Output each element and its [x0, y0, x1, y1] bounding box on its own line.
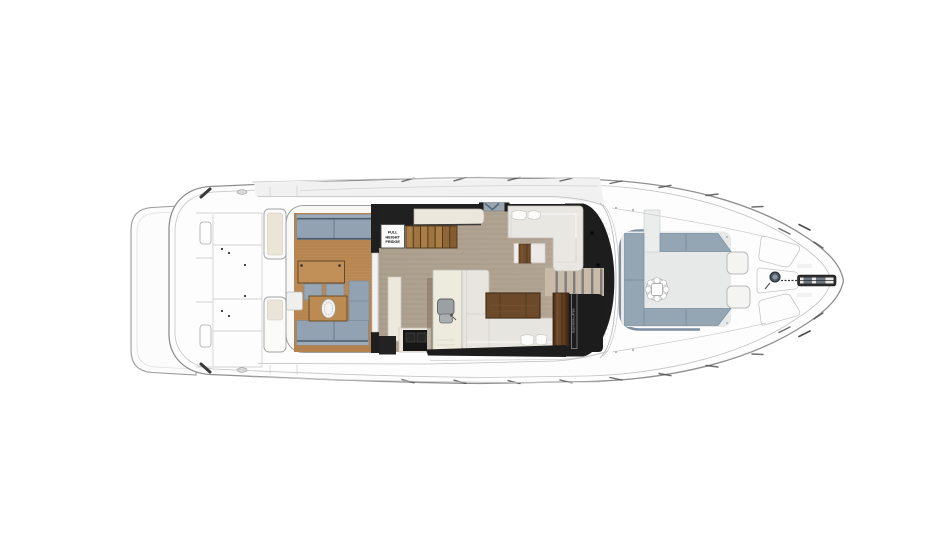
svg-text:HEIGHT: HEIGHT	[386, 235, 401, 239]
svg-text:TELEVISION LIFTER: TELEVISION LIFTER	[572, 308, 576, 333]
svg-text:FULL: FULL	[388, 231, 398, 235]
svg-text:FRIDGE: FRIDGE	[386, 240, 401, 244]
